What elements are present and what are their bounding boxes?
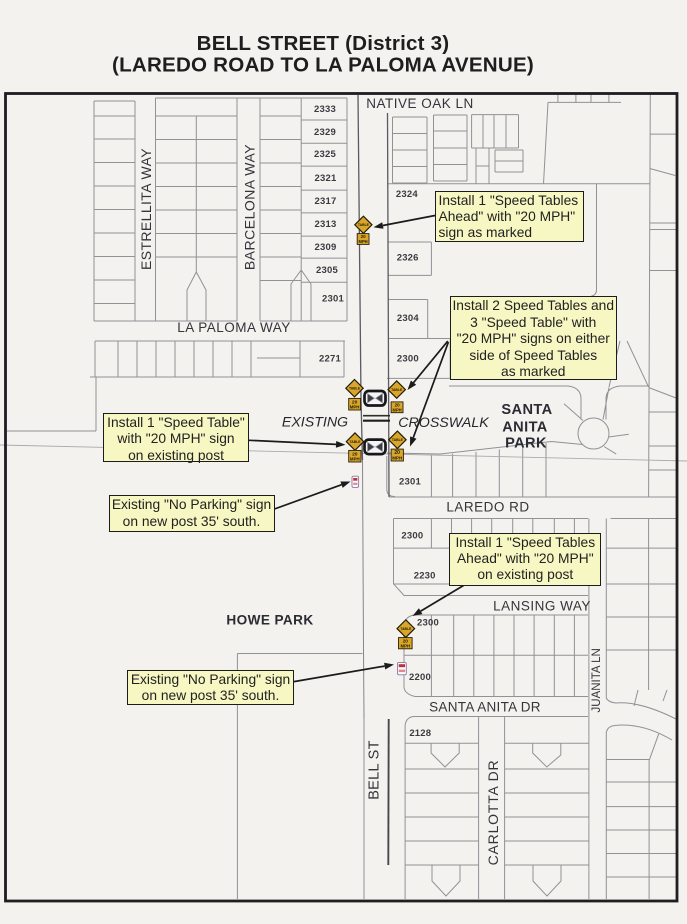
svg-text:BELL STREET (District 3): BELL STREET (District 3): [197, 32, 450, 55]
svg-text:2329: 2329: [314, 127, 336, 138]
svg-text:TABLE: TABLE: [358, 223, 370, 227]
svg-text:2321: 2321: [315, 173, 337, 184]
svg-text:MPH: MPH: [401, 644, 411, 649]
svg-text:2326: 2326: [397, 253, 419, 264]
svg-text:MPH: MPH: [393, 407, 402, 412]
svg-text:HOWE PARK: HOWE PARK: [226, 613, 313, 628]
svg-text:CROSSWALK: CROSSWALK: [398, 415, 489, 431]
svg-text:PARK: PARK: [505, 436, 547, 452]
svg-text:JUANITA LN: JUANITA LN: [591, 648, 603, 712]
svg-text:TABLE: TABLE: [392, 438, 404, 442]
svg-text:MPH: MPH: [392, 456, 402, 461]
svg-text:2300: 2300: [417, 618, 439, 629]
svg-text:MPH: MPH: [350, 405, 360, 410]
svg-text:(LAREDO ROAD TO LA PALOMA AVEN: (LAREDO ROAD TO LA PALOMA AVENUE): [112, 54, 534, 77]
svg-text:2309: 2309: [315, 242, 337, 253]
svg-text:ESTRELLITA WAY: ESTRELLITA WAY: [138, 148, 154, 270]
svg-text:2305: 2305: [316, 265, 338, 276]
svg-text:CARLOTTA DR: CARLOTTA DR: [485, 760, 501, 866]
svg-text:2300: 2300: [397, 354, 419, 365]
svg-text:TABLE: TABLE: [391, 388, 403, 392]
svg-text:2301: 2301: [399, 476, 421, 487]
svg-text:BELL ST: BELL ST: [367, 740, 383, 800]
svg-text:2301: 2301: [322, 294, 344, 305]
svg-text:TABLE: TABLE: [400, 627, 412, 631]
svg-text:2230: 2230: [414, 571, 436, 582]
svg-text:2333: 2333: [314, 104, 336, 115]
svg-text:LANSING WAY: LANSING WAY: [493, 599, 591, 614]
svg-text:NATIVE OAK LN: NATIVE OAK LN: [366, 96, 474, 111]
svg-text:SANTA ANITA DR: SANTA ANITA DR: [429, 699, 541, 714]
svg-text:2304: 2304: [397, 313, 419, 324]
svg-text:ANITA: ANITA: [502, 420, 548, 436]
svg-text:LAREDO RD: LAREDO RD: [446, 500, 529, 515]
svg-text:TABLE: TABLE: [349, 386, 361, 390]
svg-text:2300: 2300: [401, 530, 423, 541]
svg-text:2324: 2324: [396, 189, 418, 200]
svg-text:TABLE: TABLE: [349, 440, 361, 444]
svg-text:EXISTING: EXISTING: [282, 415, 348, 431]
svg-text:2271: 2271: [319, 354, 341, 365]
svg-text:2128: 2128: [409, 728, 431, 739]
svg-text:LA PALOMA WAY: LA PALOMA WAY: [177, 320, 291, 335]
svg-text:MPH: MPH: [359, 239, 368, 244]
svg-text:2325: 2325: [314, 149, 336, 160]
svg-text:MPH: MPH: [350, 457, 360, 462]
svg-text:SANTA: SANTA: [501, 402, 552, 418]
svg-text:2317: 2317: [315, 196, 337, 207]
svg-text:2313: 2313: [315, 219, 337, 230]
svg-text:BARCELONA WAY: BARCELONA WAY: [242, 144, 258, 270]
svg-text:2200: 2200: [409, 672, 431, 683]
